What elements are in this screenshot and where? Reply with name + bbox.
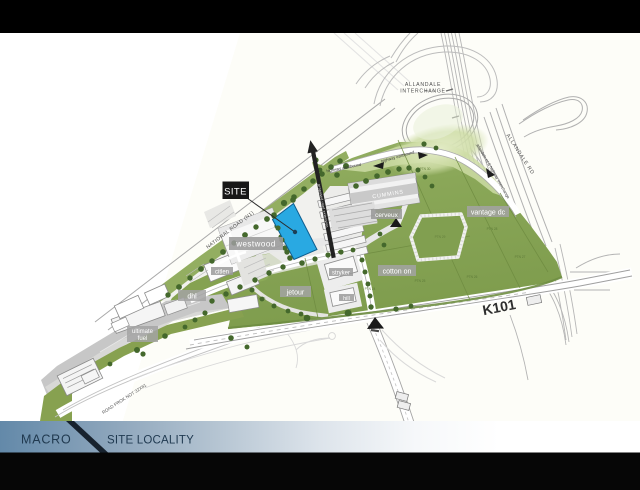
svg-text:SITE: SITE	[224, 187, 247, 198]
svg-text:INTERCHANGE: INTERCHANGE	[400, 89, 445, 95]
svg-text:citlen: citlen	[215, 270, 229, 276]
svg-text:PTN 28: PTN 28	[487, 227, 498, 231]
svg-text:hill: hill	[343, 296, 350, 302]
svg-text:SITE LOCALITY: SITE LOCALITY	[107, 435, 194, 447]
svg-text:MACRO: MACRO	[21, 433, 72, 447]
svg-text:jetour: jetour	[286, 290, 305, 297]
svg-text:ultimate: ultimate	[132, 329, 154, 335]
svg-text:cerveux: cerveux	[375, 212, 399, 219]
svg-text:fuel: fuel	[138, 336, 148, 342]
svg-text:PTN 27: PTN 27	[515, 255, 526, 259]
svg-text:PTN 25: PTN 25	[415, 279, 426, 283]
svg-text:vantage dc: vantage dc	[471, 210, 506, 217]
svg-text:PTN 26: PTN 26	[467, 275, 478, 279]
svg-text:PTN 29: PTN 29	[435, 235, 446, 239]
svg-text:PTN 30: PTN 30	[420, 167, 431, 171]
svg-text:westwood: westwood	[235, 240, 276, 249]
svg-text:ALLANDALE: ALLANDALE	[405, 82, 441, 88]
svg-text:stryker: stryker	[332, 271, 350, 277]
svg-text:cotton on: cotton on	[383, 269, 412, 276]
svg-text:PTN 24: PTN 24	[365, 287, 376, 291]
svg-text:dhl: dhl	[187, 294, 197, 301]
